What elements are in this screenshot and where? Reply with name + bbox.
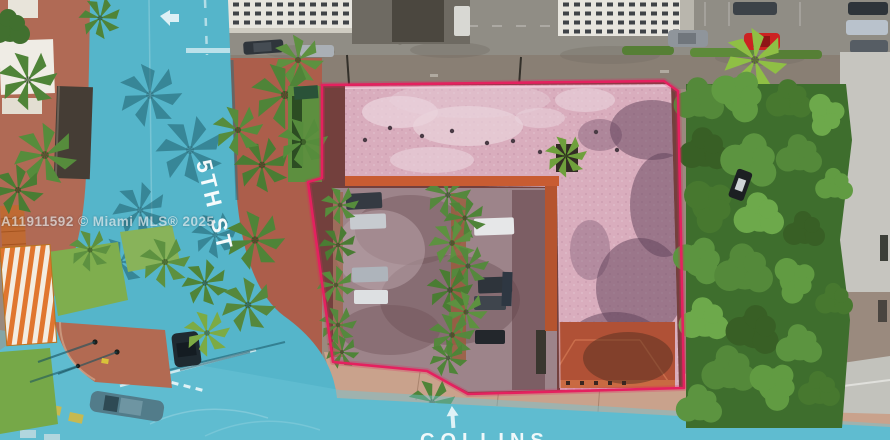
white-van bbox=[454, 6, 470, 36]
parked-car bbox=[475, 330, 505, 344]
dark-car bbox=[733, 2, 777, 15]
parked-cars-right bbox=[846, 2, 888, 53]
hedge bbox=[622, 46, 674, 55]
parapet-orange-east bbox=[545, 186, 557, 331]
striped-awning-building bbox=[0, 245, 57, 346]
dumpster bbox=[294, 85, 319, 100]
parapet-orange bbox=[345, 176, 559, 186]
lawn bbox=[0, 348, 58, 434]
aerial-photo: 5TH ST COLLINS A11911592 © Miami MLS® 20… bbox=[0, 0, 890, 440]
parked-car bbox=[354, 290, 388, 304]
aerial-scene: 5TH ST COLLINS bbox=[0, 0, 890, 440]
parked-car bbox=[352, 266, 389, 282]
east-trees bbox=[668, 52, 890, 428]
parked-car bbox=[350, 213, 387, 229]
parking-courtyard bbox=[311, 172, 557, 392]
street-label-collins: COLLINS bbox=[420, 430, 550, 440]
gray-car bbox=[668, 30, 708, 47]
terracotta-roof bbox=[543, 322, 675, 388]
